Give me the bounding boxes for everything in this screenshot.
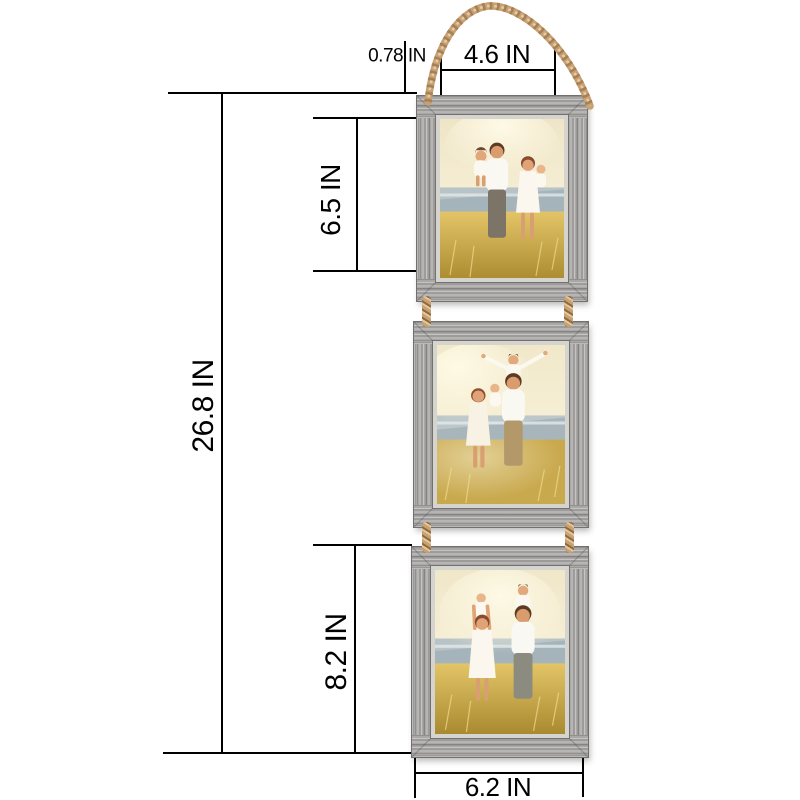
frame-2 bbox=[414, 322, 588, 527]
frame-rail bbox=[417, 279, 587, 301]
photo-3 bbox=[431, 566, 569, 738]
rope-link-right-lower bbox=[565, 522, 574, 553]
dim-tick-frame-width-right bbox=[582, 757, 584, 797]
label-frame-width: 6.2 IN bbox=[465, 774, 531, 800]
frame-rail bbox=[565, 96, 587, 301]
label-top-photo-height: 6.5 IN bbox=[317, 164, 345, 236]
rope-hanger bbox=[410, 0, 605, 112]
dim-line-bottom-reference bbox=[163, 752, 412, 754]
family-photo-illustration-2 bbox=[437, 345, 565, 504]
dim-line-bottom-frame-vertical bbox=[354, 544, 356, 754]
dim-line-photo-height-vertical bbox=[356, 117, 358, 272]
dim-line-total-height-vertical bbox=[221, 92, 223, 754]
frame-rail bbox=[566, 322, 588, 527]
miter-joint bbox=[566, 735, 588, 757]
photo-2 bbox=[433, 341, 569, 508]
miter-joint bbox=[412, 735, 434, 757]
dim-line-top-reference bbox=[168, 92, 417, 94]
frame-3 bbox=[412, 547, 588, 757]
frame-1 bbox=[417, 96, 587, 301]
frame-rail bbox=[414, 505, 588, 527]
frame-rail bbox=[566, 547, 588, 757]
dim-tick-frame-width-left bbox=[414, 752, 416, 798]
label-total-height: 26.8 IN bbox=[189, 359, 219, 452]
family-photo-illustration-3 bbox=[435, 570, 565, 734]
dim-tick-bottom-frame-top bbox=[313, 544, 412, 546]
rope-link-left-upper bbox=[422, 296, 431, 327]
photo-1 bbox=[436, 115, 568, 282]
rope-link-right-upper bbox=[564, 296, 573, 327]
family-photo-illustration-1 bbox=[440, 119, 564, 278]
product-dimension-diagram: 0.78 IN 4.6 IN 6.5 IN 26.8 IN 8.2 IN 6.2… bbox=[0, 0, 800, 800]
frame-rail bbox=[412, 735, 588, 757]
label-bottom-frame-height: 8.2 IN bbox=[322, 613, 352, 690]
rope-link-left-lower bbox=[422, 522, 431, 553]
